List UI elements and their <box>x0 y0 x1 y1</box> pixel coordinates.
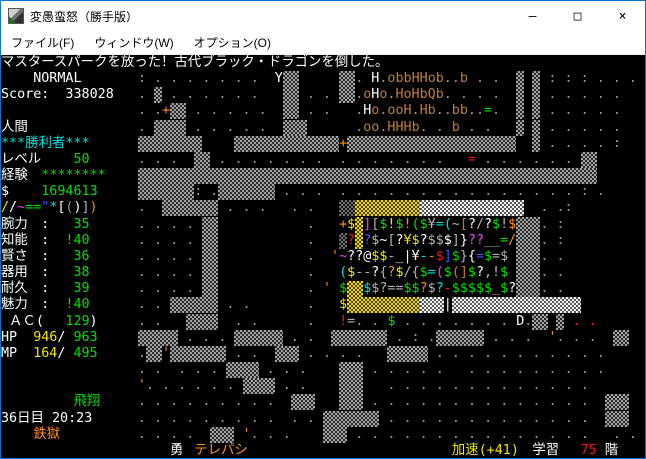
map-wall <box>162 200 218 216</box>
map-text: ( <box>339 265 347 282</box>
map-text: } <box>460 233 468 250</box>
map-text: ? <box>371 265 379 282</box>
map-text: . . . . <box>138 265 194 282</box>
map-text: . . . <box>283 184 323 201</box>
stat-int-value: !40 <box>65 233 89 250</box>
map-wall <box>355 217 363 233</box>
map-text: - <box>420 249 428 266</box>
map-text: = <box>436 217 444 234</box>
map-text: , <box>484 265 492 282</box>
map-text: .. <box>444 71 460 88</box>
map-text: ? <box>484 217 492 234</box>
map-wall <box>202 265 218 281</box>
map-text: . . . . <box>444 87 500 104</box>
map-text: .. <box>468 103 484 120</box>
depth-unit: 階 <box>597 443 618 459</box>
map-text: . <box>379 103 387 120</box>
map-text: : <box>565 200 581 217</box>
map-text: . . . <box>267 362 315 379</box>
map-text: . . . . . <box>371 362 444 379</box>
depth-value: 75 <box>573 443 597 459</box>
map-text: . . . <box>251 427 299 444</box>
map-wall <box>387 346 427 362</box>
map-wall <box>420 297 444 313</box>
map-wall <box>532 87 540 103</box>
map-wall <box>194 152 210 168</box>
map-text: . <box>387 87 395 104</box>
map-text: . . . . . . . . . <box>468 362 605 379</box>
map-wall <box>339 233 347 249</box>
map-text: . . <box>291 411 315 428</box>
map-wall <box>532 71 540 87</box>
map-text: . . . . . . . <box>218 152 323 169</box>
map-text: . . <box>540 249 564 266</box>
map-text: . . <box>138 103 162 120</box>
map-text: oo <box>363 120 379 137</box>
item-ring: = <box>468 152 476 169</box>
map-text: H <box>404 103 412 120</box>
map-text: [ <box>460 217 468 234</box>
map-text: . . . . . . . <box>138 394 243 411</box>
map-text: | <box>404 249 412 266</box>
map-wall <box>202 281 218 297</box>
map-text: ? <box>395 233 403 250</box>
map-text: ¥ <box>428 217 436 234</box>
map-wall <box>210 427 234 443</box>
map-text: ? <box>387 265 395 282</box>
map-text: . . <box>251 394 275 411</box>
map-text: ? <box>508 281 516 298</box>
map-wall <box>420 200 525 216</box>
map-text: ] <box>82 200 90 217</box>
map-text: : <box>41 297 49 314</box>
map-text: . . <box>540 265 564 282</box>
map-text: . . . <box>556 330 604 347</box>
map-text: } <box>460 249 468 266</box>
map-text: . . <box>291 200 315 217</box>
map-text: __ <box>484 233 500 250</box>
map-text: { <box>379 265 387 282</box>
hp-current: 946 <box>33 330 57 347</box>
map-wall <box>516 71 524 87</box>
map-text: . <box>492 103 500 120</box>
maximize-button[interactable]: □ <box>555 1 600 31</box>
map-text: . . . . . . . . . . . . . . . <box>339 184 573 201</box>
map-wall <box>323 427 347 443</box>
menu-item-window[interactable]: ウィンドウ(W) <box>84 31 183 54</box>
map-text: $ <box>420 265 428 282</box>
map-text: : . <box>581 184 605 201</box>
map-text: - <box>444 281 452 298</box>
map-wall <box>154 120 186 136</box>
map-text: . . <box>226 297 258 314</box>
map-wall <box>202 233 218 249</box>
map-text: . . . . . . . . . . . . . <box>387 378 589 395</box>
map-text: $ <box>371 233 379 250</box>
map-text: . . . . . <box>548 87 621 104</box>
map-wall <box>516 233 540 249</box>
map-text: . . . <box>178 362 218 379</box>
map-text: $ <box>444 265 452 282</box>
item-potion: ! <box>339 314 347 331</box>
map-text: : <box>41 249 49 266</box>
map-text: . <box>355 87 363 104</box>
map-text: ? <box>468 217 476 234</box>
ac-value: 129 <box>65 314 89 331</box>
map-text: oo <box>387 103 403 120</box>
map-wall <box>613 330 629 346</box>
map-wall <box>339 200 355 216</box>
map-wall <box>452 297 581 313</box>
map-wall <box>516 217 540 233</box>
map-text: . . <box>540 200 564 217</box>
map-text: . . . . . . . . . <box>138 411 275 428</box>
map-text: : . . . . . . . <box>138 71 259 88</box>
map-text: - <box>387 249 395 266</box>
map-wall <box>516 87 524 103</box>
map-wall <box>234 136 339 152</box>
map-text: . . . . . . . . . . . <box>436 346 605 363</box>
monster-group: HoHbQb <box>395 87 443 104</box>
map-text: . : . <box>395 330 435 347</box>
minimize-button[interactable]: – <box>510 1 555 31</box>
gold-label: $ <box>1 184 9 201</box>
map-text: $ <box>492 217 500 234</box>
map-text: { <box>412 265 420 282</box>
map-text: ] <box>363 217 371 234</box>
map-wall <box>339 394 363 410</box>
map-text: : . <box>194 184 218 201</box>
mp-max: 495 <box>73 346 97 363</box>
map-text: . . . . . <box>548 120 621 137</box>
map-text: . . . . . . . <box>339 152 452 169</box>
map-text: $ <box>363 281 371 298</box>
map-text: * <box>49 200 57 217</box>
map-text: b <box>452 120 460 137</box>
map-text: ¥ <box>404 233 412 250</box>
map-text: ! <box>387 217 395 234</box>
map-wall <box>532 120 540 136</box>
map-text: . . . . : <box>548 136 621 153</box>
map-text: . . . . <box>138 427 194 444</box>
map-wall <box>347 136 516 152</box>
map-wall <box>347 281 363 297</box>
map-text: == <box>25 200 41 217</box>
map-text: = <box>347 314 355 331</box>
map-text: ) <box>73 200 81 217</box>
map-text: . <box>307 217 315 234</box>
map-text: [ <box>387 233 395 250</box>
map-text: Hb <box>420 103 436 120</box>
door: + <box>339 136 347 153</box>
map-wall <box>532 136 540 152</box>
map-text: . . . . . . . . . . . . . <box>387 411 589 428</box>
item-ring: = <box>484 103 492 120</box>
dungeon-name: 鉄獄 <box>33 427 60 444</box>
open-door: ' <box>138 378 146 395</box>
score-value: 338028 <box>65 87 113 104</box>
map-wall <box>339 87 355 103</box>
map-text: / <box>9 200 17 217</box>
map-text: $ <box>500 265 508 282</box>
map-text: { <box>468 249 476 266</box>
learning-status: 学習 <box>532 443 559 459</box>
map-text: . . <box>307 87 331 104</box>
map-text: . <box>524 314 532 331</box>
flight-status: 飛翔 <box>73 394 100 411</box>
map-text: : <box>41 265 49 282</box>
map-text: . . . <box>186 330 226 347</box>
map-text: o <box>371 103 379 120</box>
map-text: . . <box>468 120 492 137</box>
telepathy-status: テレパシ <box>194 443 248 459</box>
map-wall <box>339 362 363 378</box>
map-text: ?? <box>468 233 484 250</box>
map-text: bb <box>452 103 468 120</box>
map-wall <box>202 217 218 233</box>
stat-wis-value: 36 <box>73 249 89 266</box>
map-wall <box>339 71 355 87</box>
map-text: $ <box>371 281 379 298</box>
map-text: ¥ <box>412 249 420 266</box>
map-wall <box>138 330 178 346</box>
score-label: Score: <box>1 87 49 104</box>
map-text: : <box>41 217 49 234</box>
map-text: $ <box>339 281 347 298</box>
map-text: ?? <box>347 249 363 266</box>
map-text: $ <box>347 217 355 234</box>
map-text: $ <box>347 265 355 282</box>
map-text: : <box>41 281 49 298</box>
map-text: b <box>460 71 468 88</box>
map-wall <box>532 314 548 330</box>
map-wall <box>138 136 202 152</box>
map-wall <box>516 120 524 136</box>
menubar: ファイル(F) ウィンドウ(W) オプション(O) <box>1 31 645 55</box>
map-text: ( <box>65 200 73 217</box>
race-label: 人間 <box>1 120 28 137</box>
map-text: / <box>404 265 412 282</box>
map-text: . <box>138 346 146 363</box>
stat-chr-value: !40 <box>65 297 89 314</box>
map-wall <box>275 346 299 362</box>
map-text: . . <box>355 314 379 331</box>
map-text: . . . . <box>138 281 194 298</box>
map-text: . : <box>540 233 564 250</box>
map-text: . . . . . <box>194 103 267 120</box>
map-wall <box>516 249 540 265</box>
open-door: ' <box>548 330 556 347</box>
map-wall <box>243 378 275 394</box>
map-wall <box>347 297 419 313</box>
map-text: . . . . . . <box>146 378 235 395</box>
map-text: . . . . <box>307 346 363 363</box>
map-wall <box>146 346 162 362</box>
vault-door: + <box>339 217 347 234</box>
map-text: . . . . . . <box>170 87 259 104</box>
app-icon <box>8 8 24 24</box>
map-text: $ <box>387 314 395 331</box>
map-text: . . . . <box>138 249 194 266</box>
monster-y: Y <box>275 71 283 88</box>
map-wall <box>516 265 540 281</box>
level-value: 50 <box>73 152 89 169</box>
map-text: $ <box>428 281 436 298</box>
map-text: / <box>476 217 484 234</box>
menu-item-option[interactable]: オプション(O) <box>184 31 281 54</box>
map-text: H <box>371 87 379 104</box>
map-wall <box>138 184 194 200</box>
map-text: . <box>307 265 315 282</box>
map-text: ( <box>412 217 420 234</box>
map-text: .. <box>436 103 452 120</box>
map-text: . . . . . . <box>484 152 573 169</box>
map-wall <box>283 103 299 119</box>
stat-dex-label: 器用 <box>1 265 28 282</box>
stat-con-label: 耐久 <box>1 281 28 298</box>
open-door: ' <box>331 249 339 266</box>
map-wall <box>532 103 540 119</box>
map-text: . <box>412 103 420 120</box>
map-text: / <box>57 346 65 363</box>
monster-dragon: D <box>516 314 524 331</box>
map-text: . <box>589 314 597 331</box>
exp-label: 経験 <box>1 168 28 185</box>
map-text: . . <box>420 120 444 137</box>
map-text: $$ <box>428 233 444 250</box>
map-text: . . <box>234 314 258 331</box>
map-text: ] <box>444 249 452 266</box>
map-text: . <box>379 71 387 88</box>
map-text: ~ <box>379 233 387 250</box>
map-text: = <box>492 249 500 266</box>
map-wall <box>138 168 597 184</box>
monster-h: H <box>371 71 379 88</box>
map-text: . <box>307 297 315 314</box>
map-wall <box>283 120 307 136</box>
map-text: $ <box>395 265 403 282</box>
map-text: $ <box>412 233 420 250</box>
map-text: . <box>573 314 581 331</box>
titlebar[interactable]: 変愚蛮怒（勝手版） – □ × <box>1 1 645 31</box>
map-text: $ <box>484 249 492 266</box>
map-wall <box>516 103 524 119</box>
map-text: . . <box>307 103 331 120</box>
map-text: . . <box>138 314 170 331</box>
map-wall <box>234 330 282 346</box>
map-text: . <box>307 249 315 266</box>
map-text: . . . . <box>138 233 194 250</box>
menu-item-file[interactable]: ファイル(F) <box>1 31 84 54</box>
hp-max: 963 <box>73 330 97 347</box>
player: @ <box>363 249 371 266</box>
map-text: $$ <box>404 281 420 298</box>
close-button[interactable]: × <box>600 1 645 31</box>
map-text: . . <box>283 378 315 395</box>
map-text: == <box>387 281 403 298</box>
map-wall <box>339 378 363 394</box>
map-text: = <box>428 265 436 282</box>
map-text: " <box>41 200 49 217</box>
map-text: $ <box>339 297 347 314</box>
mp-current: 164 <box>33 346 57 363</box>
map-text: . . <box>613 427 637 444</box>
map-text: ? <box>420 233 428 250</box>
map-text: ? <box>420 281 428 298</box>
map-text: . <box>355 120 363 137</box>
game-time: 36日目 20:23 <box>1 411 92 428</box>
haste-status: 加速(+41) <box>452 443 519 459</box>
equip-weapon: / <box>1 200 9 217</box>
map-text: ? <box>476 265 484 282</box>
map-text: _ <box>395 249 403 266</box>
map-wall <box>283 87 299 103</box>
map-text: . <box>379 120 387 137</box>
ac-label: ＡＣ( <box>9 314 44 331</box>
door: + <box>162 103 170 120</box>
map-text: ( <box>452 265 460 282</box>
map-wall <box>154 87 162 103</box>
map-text: : <box>41 233 49 250</box>
map-wall <box>355 233 363 249</box>
app-window: 変愚蛮怒（勝手版） – □ × ファイル(F) ウィンドウ(W) オプション(O… <box>0 0 646 459</box>
map-text: ( <box>436 265 444 282</box>
map-text: -- <box>355 265 371 282</box>
stat-wis-label: 賢さ <box>1 249 28 266</box>
map-text: . <box>138 200 154 217</box>
map-text: ~ <box>339 249 347 266</box>
stat-str-label: 腕力 <box>1 217 28 234</box>
monster-group: obbHHob <box>387 71 443 88</box>
map-text: _ <box>492 281 500 298</box>
map-text: $ <box>395 217 403 234</box>
map-text: [ <box>57 200 65 217</box>
map-wall <box>218 184 274 200</box>
map-text: o <box>379 87 387 104</box>
stat-str-value: 35 <box>73 217 89 234</box>
map-text: . <box>355 103 363 120</box>
map-text: $ <box>436 249 444 266</box>
map-text: H <box>363 103 371 120</box>
open-door: ' <box>162 346 170 363</box>
map-text: ] <box>460 265 468 282</box>
map-wall <box>605 394 629 410</box>
mp-label: MP <box>1 346 17 363</box>
map-text: $ <box>444 233 452 250</box>
map-text: | <box>444 297 452 314</box>
map-text: : : : . <box>548 71 604 88</box>
map-text: - <box>428 249 436 266</box>
stat-chr-label: 魅力 <box>1 297 28 314</box>
map-text: ? <box>379 281 387 298</box>
map-text: . <box>355 71 363 88</box>
map-text: $ <box>452 249 460 266</box>
map-text: . . . . . . . . . . . . . . <box>371 394 589 411</box>
game-screen: マスタースパークを放った！古代ブラック・ドラゴンを倒した。NORMAL: . .… <box>1 55 645 459</box>
stat-dex-value: 38 <box>73 265 89 282</box>
map-wall <box>170 346 226 362</box>
map-wall <box>226 362 258 378</box>
map-wall <box>331 330 387 346</box>
map-text: ( <box>444 217 452 234</box>
map-text: . . . <box>138 152 186 169</box>
map-text: . : <box>540 217 564 234</box>
open-door: ' <box>243 427 251 444</box>
map-wall <box>323 411 379 427</box>
map-text: ? <box>436 281 444 298</box>
map-wall <box>202 249 218 265</box>
map-wall <box>170 103 186 119</box>
